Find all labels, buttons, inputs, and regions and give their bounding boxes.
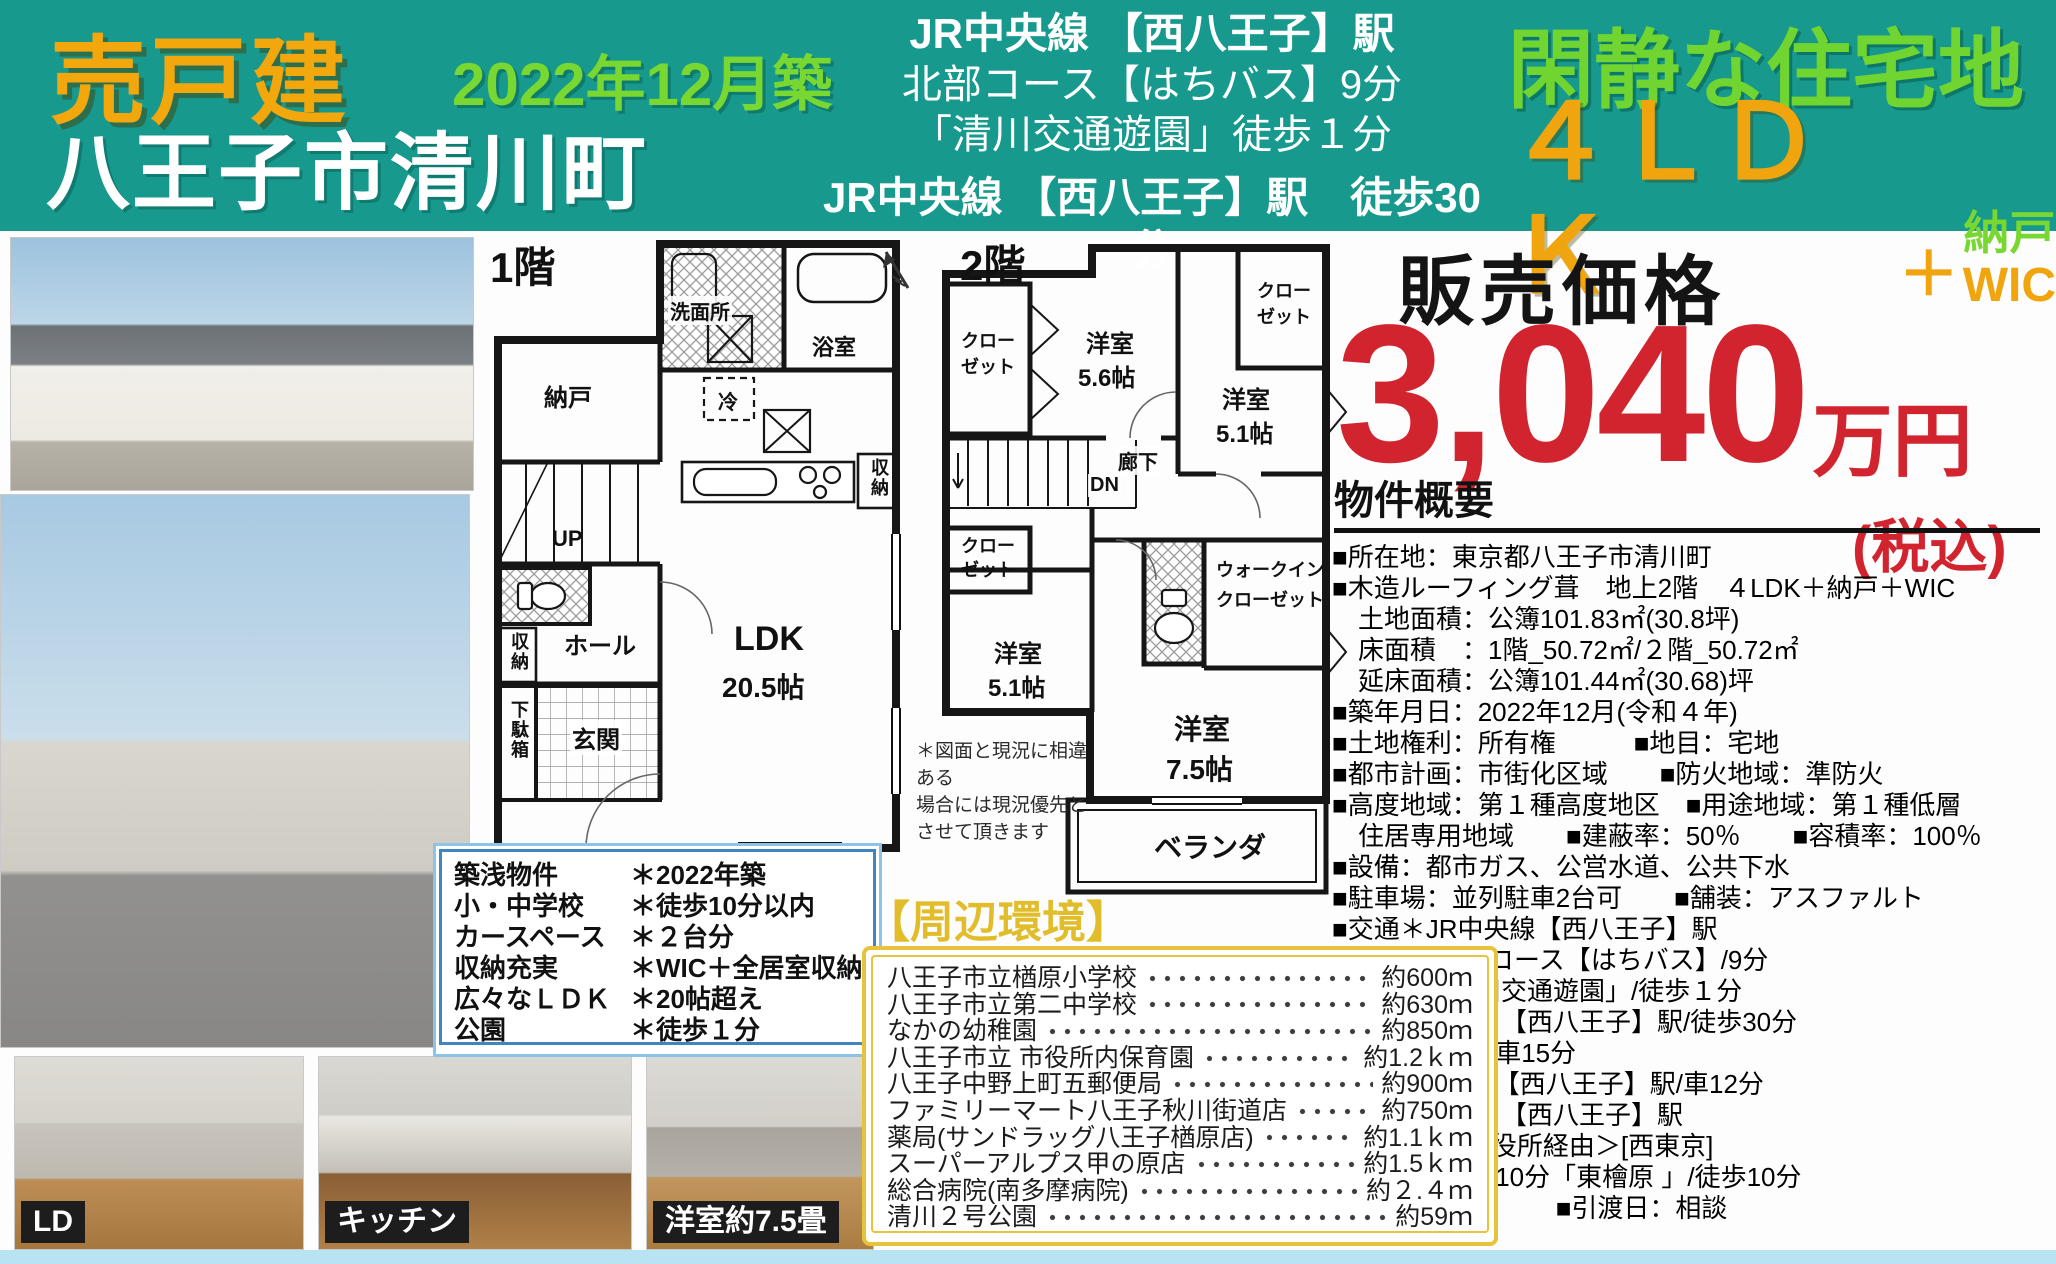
place-distance: 約900ｍ bbox=[1381, 1071, 1473, 1098]
access-line-2: 北部コース【はちバス】9分 bbox=[812, 60, 1492, 110]
feature-row: 築浅物件 ＊2022年築 bbox=[454, 860, 867, 891]
feature-label: 広々なＬＤＫ bbox=[454, 984, 630, 1015]
place-name: 総合病院(南多摩病院) bbox=[887, 1178, 1129, 1205]
dot-leader bbox=[1137, 1180, 1358, 1202]
dot-leader bbox=[1194, 1153, 1356, 1175]
room-label-ldk: LDK bbox=[734, 620, 804, 659]
place-distance: 約1.2ｋｍ bbox=[1363, 1045, 1473, 1072]
surroundings-item: 清川２号公園 約59ｍ bbox=[887, 1204, 1473, 1231]
overview-title-rule bbox=[1334, 528, 2040, 533]
overview-line: ■交通＊JR中央線【西八王子】駅 bbox=[1332, 914, 2052, 945]
floorplan-2f: 2階 クローゼット 洋室 5.6帖 クローゼット 洋室 5.1帖 廊下 DN ク… bbox=[916, 238, 1348, 923]
place-name: スーパーアルプス甲の原店 bbox=[887, 1151, 1186, 1178]
feature-value: ＊2022年築 bbox=[630, 860, 766, 891]
place-distance: 約600ｍ bbox=[1381, 965, 1473, 992]
room-label-getabako: 下駄箱 bbox=[506, 700, 532, 760]
surroundings-item: 八王子中野上町五郵便局 約900ｍ bbox=[887, 1071, 1473, 1098]
room-label-r56: 洋室 bbox=[1086, 324, 1134, 359]
price-row: 3,040 万円 bbox=[1336, 296, 1972, 492]
surroundings-box: 八王子市立楢原小学校 約600ｍ 八王子市立第二中学校 約630ｍ なかの幼稚園… bbox=[862, 946, 1498, 1246]
floorplan-1f-title: 1階 bbox=[490, 234, 555, 295]
room-label-wic-line1: ウォークイン bbox=[1216, 556, 1324, 582]
dot-leader bbox=[1262, 1127, 1356, 1149]
interior-photo-kitchen: キッチン bbox=[318, 1056, 632, 1250]
exterior-photo-front bbox=[10, 237, 474, 491]
features-box-inner: 築浅物件 ＊2022年築 小・中学校 ＊徒歩10分以内 カースペース ＊２台分 … bbox=[439, 849, 876, 1045]
room-label-shunou-hall: 収納 bbox=[506, 632, 532, 672]
room-label-wic-line2: クローゼット bbox=[1216, 586, 1324, 612]
room-label-ldk-size: 20.5帖 bbox=[722, 666, 805, 706]
overview-line: ■高度地域：第１種高度地区 ■用途地域：第１種低層 bbox=[1332, 790, 2052, 821]
place-name: 八王子市立楢原小学校 bbox=[887, 965, 1137, 992]
price-amount: 3,040 bbox=[1336, 296, 1806, 492]
place-distance: 約850ｍ bbox=[1381, 1018, 1473, 1045]
overview-line: ■所在地：東京都八王子市清川町 bbox=[1332, 542, 2052, 573]
overview-line: ■土地権利：所有権 ■地目：宅地 bbox=[1332, 728, 2052, 759]
overview-line: 延床面積：公簿101.44㎡(30.68)坪 bbox=[1332, 666, 2052, 697]
room-label-r51a: 洋室 bbox=[1222, 380, 1270, 415]
room-label-r51b-size: 5.1帖 bbox=[988, 668, 1045, 703]
floorplan-disclaimer: ＊図面と現況に相違ある 場合には現況優先と させて頂きます bbox=[916, 738, 1094, 846]
exterior-photo-street bbox=[0, 494, 470, 1048]
overview-line: ■都市計画：市街化区域 ■防火地域：準防火 bbox=[1332, 759, 2052, 790]
place-distance: 約1.5ｋｍ bbox=[1363, 1151, 1473, 1178]
access-info: JR中央線 【西八王子】駅 北部コース【はちバス】9分 「清川交通遊園」徒歩１分… bbox=[812, 8, 1492, 276]
feature-row: カースペース ＊２台分 bbox=[454, 922, 867, 953]
room-label-r75: 洋室 bbox=[1174, 708, 1230, 748]
surroundings-item: 八王子市立楢原小学校 約600ｍ bbox=[887, 965, 1473, 992]
feature-value: ＊徒歩１分 bbox=[630, 1015, 760, 1046]
room-label-rouka: 廊下 bbox=[1116, 446, 1160, 475]
room-label-r75-size: 7.5帖 bbox=[1166, 748, 1233, 788]
surroundings-title: 【周辺環境】 bbox=[866, 886, 1130, 950]
room-label-nando: 納戸 bbox=[544, 378, 592, 413]
dot-leader bbox=[1145, 967, 1373, 989]
dot-leader bbox=[1170, 1074, 1373, 1096]
place-name: なかの幼稚園 bbox=[887, 1018, 1037, 1045]
plan-extras: 納戸 WIC bbox=[1963, 207, 2056, 315]
floorplan-2f-title: 2階 bbox=[960, 232, 1025, 293]
room-label-veranda: ベランダ bbox=[1154, 826, 1266, 866]
feature-value: ＊徒歩10分以内 bbox=[630, 891, 815, 922]
room-label-senmenjo: 洗面所 bbox=[668, 296, 732, 325]
room-label-r56-size: 5.6帖 bbox=[1078, 358, 1135, 393]
feature-value: ＊２台分 bbox=[630, 922, 734, 953]
surroundings-item: 八王子市立第二中学校 約630ｍ bbox=[887, 992, 1473, 1019]
room-label-rei: 冷 bbox=[718, 386, 738, 415]
place-name: 八王子市立第二中学校 bbox=[887, 992, 1137, 1019]
feature-label: 収納充実 bbox=[454, 953, 630, 984]
room-label-hall: ホール bbox=[564, 626, 636, 661]
room-label-closet-ml: クローゼット bbox=[958, 534, 1018, 582]
plan-extra-nando: 納戸 bbox=[1963, 207, 2055, 259]
dot-leader bbox=[1145, 994, 1373, 1016]
overview-line: ■築年月日：2022年12月(令和４年) bbox=[1332, 697, 2052, 728]
feature-label: カースペース bbox=[454, 922, 630, 953]
place-distance: 約750ｍ bbox=[1381, 1098, 1473, 1125]
place-distance: 約630ｍ bbox=[1381, 992, 1473, 1019]
place-name: 八王子中野上町五郵便局 bbox=[887, 1071, 1162, 1098]
price-unit: 万円 bbox=[1806, 402, 1972, 492]
place-distance: 約1.1ｋｍ bbox=[1363, 1125, 1473, 1152]
overview-title: 物件概要 bbox=[1334, 468, 1494, 526]
photo-caption-room: 洋室約7.5畳 bbox=[653, 1201, 839, 1243]
place-distance: 約２.４ｍ bbox=[1366, 1178, 1473, 1205]
room-label-up: UP bbox=[552, 526, 583, 552]
room-label-genkan: 玄関 bbox=[570, 720, 622, 755]
access-line-1: JR中央線 【西八王子】駅 bbox=[812, 8, 1492, 60]
surroundings-item: ファミリーマート八王子秋川街道店 約750ｍ bbox=[887, 1098, 1473, 1125]
room-label-yokushitsu: 浴室 bbox=[812, 330, 856, 362]
dot-leader bbox=[1045, 1207, 1387, 1229]
surroundings-box-inner: 八王子市立楢原小学校 約600ｍ 八王子市立第二中学校 約630ｍ なかの幼稚園… bbox=[871, 955, 1489, 1233]
room-label-closet-tl: クローゼット bbox=[958, 328, 1018, 380]
floorplan-1f: 1階 納戸 洗面所 浴室 冷 収納 UP 収納 ホール 下駄箱 玄関 LDK 2… bbox=[486, 238, 910, 858]
north-arrow-icon bbox=[872, 242, 916, 292]
room-label-shunou-kitchen: 収納 bbox=[866, 458, 892, 498]
overview-line: ■木造ルーフィング葺 地上2階 ４LDK＋納戸＋WIC bbox=[1332, 573, 2052, 604]
place-name: 八王子市立 市役所内保育園 bbox=[887, 1045, 1194, 1072]
overview-line: 住居専用地域 ■建蔽率：50％ ■容積率：100％ bbox=[1332, 821, 2052, 852]
room-label-closet-tr: クローゼット bbox=[1254, 278, 1314, 330]
overview-line: 土地面積：公簿101.83㎡(30.8坪) bbox=[1332, 604, 2052, 635]
room-label-r51a-size: 5.1帖 bbox=[1216, 414, 1273, 449]
dot-leader bbox=[1045, 1020, 1373, 1042]
feature-row: 収納充実 ＊WIC＋全居室収納 bbox=[454, 953, 867, 984]
photo-caption-kitchen: キッチン bbox=[325, 1201, 469, 1243]
photo-caption-ld: LD bbox=[21, 1201, 85, 1243]
surroundings-item: 薬局(サンドラッグ八王子楢原店) 約1.1ｋｍ bbox=[887, 1125, 1473, 1152]
dot-leader bbox=[1295, 1100, 1373, 1122]
interior-photo-ld: LD bbox=[14, 1056, 304, 1250]
feature-label: 公園 bbox=[454, 1015, 630, 1046]
feature-value: ＊20帖超え bbox=[630, 984, 763, 1015]
plan-extra-wic: WIC bbox=[1963, 259, 2056, 313]
bottom-accent-bar bbox=[0, 1250, 2056, 1264]
location-title: 八王子市清川町 bbox=[46, 106, 648, 227]
access-line-3: 「清川交通遊園」徒歩１分 bbox=[812, 110, 1492, 160]
surroundings-item: なかの幼稚園 約850ｍ bbox=[887, 1018, 1473, 1045]
place-distance: 約59ｍ bbox=[1395, 1204, 1473, 1231]
feature-label: 小・中学校 bbox=[454, 891, 630, 922]
overview-line: ■駐車場：並列駐車2台可 ■舗装：アスファルト bbox=[1332, 883, 2052, 914]
feature-row: 小・中学校 ＊徒歩10分以内 bbox=[454, 891, 867, 922]
overview-line: 床面積 ：1階_50.72㎡/２階_50.72㎡ bbox=[1332, 635, 2052, 666]
place-name: 清川２号公園 bbox=[887, 1204, 1037, 1231]
feature-value: ＊WIC＋全居室収納 bbox=[630, 953, 863, 984]
place-name: 薬局(サンドラッグ八王子楢原店) bbox=[887, 1125, 1254, 1152]
dot-leader bbox=[1202, 1047, 1355, 1069]
overview-line: ■設備：都市ガス、公営水道、公共下水 bbox=[1332, 852, 2052, 883]
surroundings-item: スーパーアルプス甲の原店 約1.5ｋｍ bbox=[887, 1151, 1473, 1178]
room-label-dn: DN bbox=[1088, 474, 1121, 497]
header-banner: 売戸建 2022年12月築 八王子市清川町 JR中央線 【西八王子】駅 北部コー… bbox=[0, 0, 2056, 231]
feature-row: 公園 ＊徒歩１分 bbox=[454, 1015, 867, 1046]
feature-row: 広々なＬＤＫ ＊20帖超え bbox=[454, 984, 867, 1015]
feature-label: 築浅物件 bbox=[454, 860, 630, 891]
surroundings-item: 総合病院(南多摩病院) 約２.４ｍ bbox=[887, 1178, 1473, 1205]
features-box: 築浅物件 ＊2022年築 小・中学校 ＊徒歩10分以内 カースペース ＊２台分 … bbox=[433, 843, 882, 1057]
place-name: ファミリーマート八王子秋川街道店 bbox=[887, 1098, 1287, 1125]
room-label-r51b: 洋室 bbox=[994, 634, 1042, 669]
interior-photo-room: 洋室約7.5畳 bbox=[646, 1056, 874, 1250]
surroundings-item: 八王子市立 市役所内保育園 約1.2ｋｍ bbox=[887, 1045, 1473, 1072]
